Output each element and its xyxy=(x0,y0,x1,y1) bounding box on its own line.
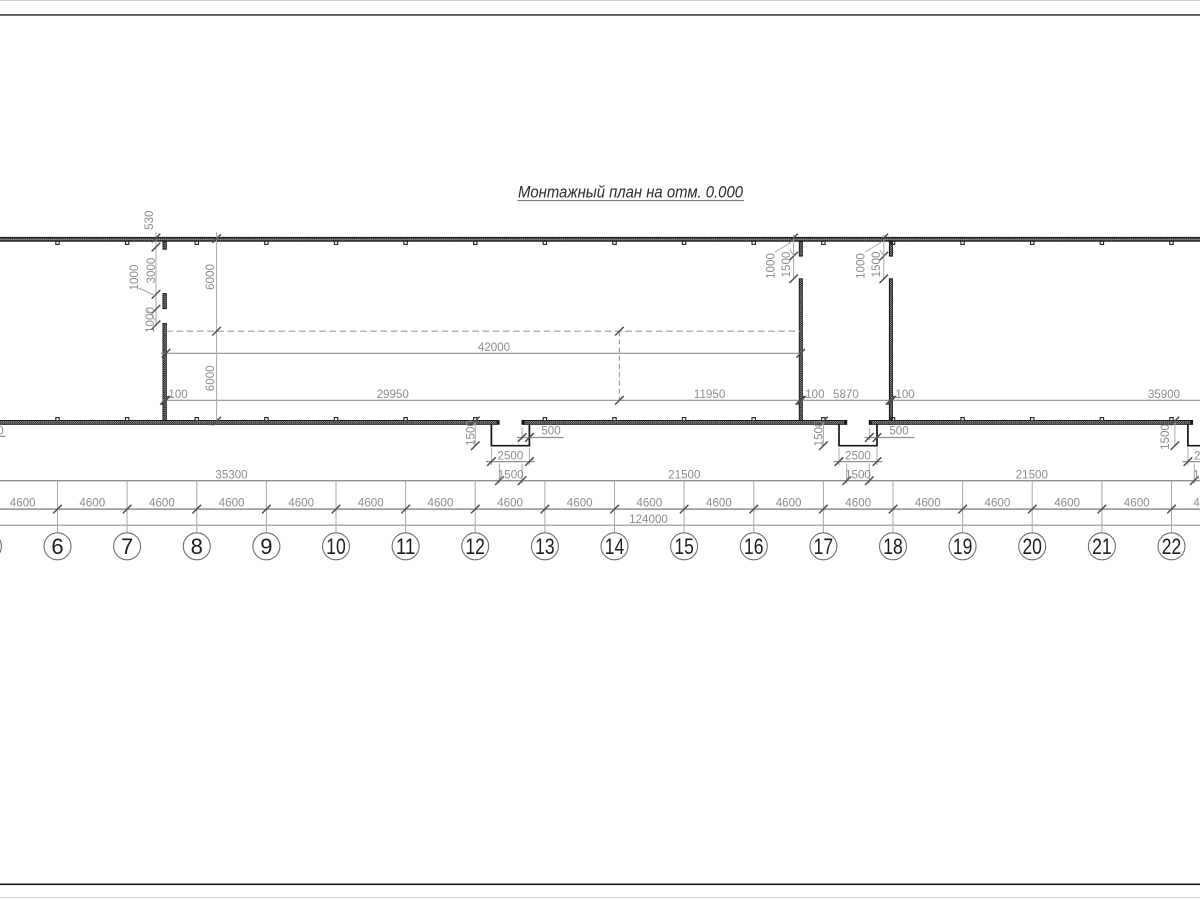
svg-text:4600: 4600 xyxy=(776,496,802,509)
svg-text:6000: 6000 xyxy=(204,264,217,290)
svg-text:20: 20 xyxy=(1022,534,1042,559)
svg-text:11950: 11950 xyxy=(694,388,725,401)
svg-text:4600: 4600 xyxy=(149,496,175,509)
svg-text:4600: 4600 xyxy=(358,496,384,509)
svg-text:7: 7 xyxy=(121,534,133,559)
svg-text:4600: 4600 xyxy=(636,496,662,509)
svg-text:18: 18 xyxy=(883,534,903,559)
svg-text:4600: 4600 xyxy=(915,496,941,509)
svg-text:14: 14 xyxy=(605,534,625,559)
svg-text:21500: 21500 xyxy=(668,468,700,481)
svg-text:500: 500 xyxy=(889,425,908,438)
svg-text:15: 15 xyxy=(674,534,694,559)
svg-text:4600: 4600 xyxy=(1124,496,1150,509)
svg-text:4600: 4600 xyxy=(288,496,314,509)
svg-text:4600: 4600 xyxy=(10,496,36,509)
svg-text:6000: 6000 xyxy=(204,365,217,391)
svg-text:1500: 1500 xyxy=(845,469,871,482)
svg-text:21: 21 xyxy=(1092,534,1112,559)
svg-text:4600: 4600 xyxy=(567,496,593,509)
svg-text:22: 22 xyxy=(1162,534,1182,559)
svg-text:4600: 4600 xyxy=(497,496,523,509)
svg-text:1500: 1500 xyxy=(1193,469,1200,482)
svg-text:4600: 4600 xyxy=(706,496,732,509)
svg-text:16: 16 xyxy=(744,534,764,559)
svg-text:1500: 1500 xyxy=(465,420,478,446)
svg-text:100: 100 xyxy=(805,388,824,401)
svg-text:1000: 1000 xyxy=(128,265,141,291)
svg-text:35300: 35300 xyxy=(215,468,247,481)
svg-text:17: 17 xyxy=(814,534,834,559)
svg-text:9: 9 xyxy=(260,534,272,559)
svg-text:4600: 4600 xyxy=(219,496,245,509)
svg-text:Монтажный план на отм. 0.000: Монтажный план на отм. 0.000 xyxy=(518,182,744,201)
svg-text:500: 500 xyxy=(0,424,4,437)
svg-text:100: 100 xyxy=(168,388,187,401)
svg-text:500: 500 xyxy=(541,425,560,438)
svg-text:1500: 1500 xyxy=(813,421,826,447)
svg-text:4600: 4600 xyxy=(79,496,105,509)
svg-text:2500: 2500 xyxy=(498,449,524,462)
svg-text:100: 100 xyxy=(895,388,914,401)
svg-text:4600: 4600 xyxy=(428,496,454,509)
svg-text:4600: 4600 xyxy=(845,496,871,509)
svg-text:1500: 1500 xyxy=(498,469,524,482)
svg-text:4600: 4600 xyxy=(985,496,1011,509)
svg-text:2500: 2500 xyxy=(1194,449,1200,462)
svg-text:13: 13 xyxy=(535,534,555,559)
svg-text:1500: 1500 xyxy=(1159,424,1172,450)
svg-text:10: 10 xyxy=(326,534,346,559)
svg-text:1000: 1000 xyxy=(764,253,777,279)
svg-text:21500: 21500 xyxy=(1016,468,1048,481)
svg-text:29950: 29950 xyxy=(377,388,409,401)
svg-text:1500: 1500 xyxy=(780,252,793,278)
svg-text:5870: 5870 xyxy=(833,388,859,401)
svg-text:42000: 42000 xyxy=(478,341,510,354)
svg-text:1500: 1500 xyxy=(870,252,883,278)
svg-text:4600: 4600 xyxy=(1193,496,1200,509)
svg-text:4600: 4600 xyxy=(1054,496,1080,509)
svg-text:35900: 35900 xyxy=(1148,388,1180,401)
svg-text:8: 8 xyxy=(191,534,203,559)
svg-text:1000: 1000 xyxy=(855,253,868,279)
svg-text:2500: 2500 xyxy=(845,449,871,462)
svg-text:19: 19 xyxy=(953,534,973,559)
svg-text:11: 11 xyxy=(396,534,416,559)
svg-text:6: 6 xyxy=(51,534,63,559)
svg-text:3000: 3000 xyxy=(145,258,158,284)
svg-text:124000: 124000 xyxy=(629,513,668,526)
svg-text:530: 530 xyxy=(143,211,156,230)
svg-text:12: 12 xyxy=(465,534,485,559)
